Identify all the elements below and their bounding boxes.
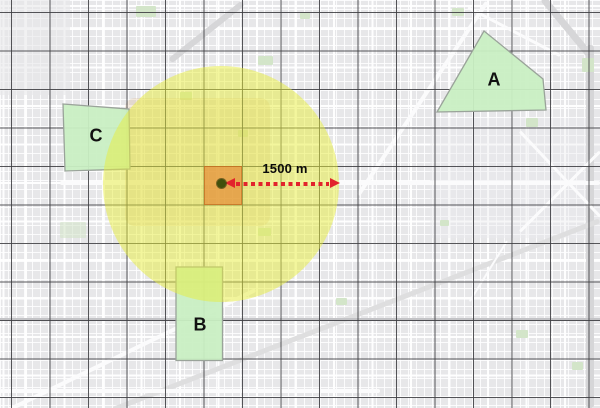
zone-c-label: C [90,126,103,147]
zone-a-label: A [488,70,501,91]
distance-arrow-dashes [236,182,329,186]
arrow-right-icon [330,178,340,188]
zone-b-label: B [194,315,207,336]
arrow-left-icon [225,178,235,188]
map-canvas[interactable]: 1500 m A B C [0,0,600,408]
center-point [217,179,226,188]
distance-label: 1500 m [262,161,307,176]
